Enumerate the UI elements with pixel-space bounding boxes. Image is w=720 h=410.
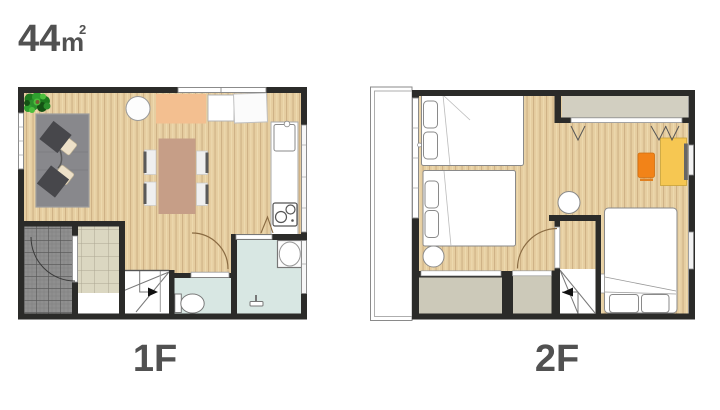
- svg-text:44: 44: [18, 18, 60, 60]
- svg-text:2: 2: [79, 22, 86, 37]
- svg-text:1F: 1F: [133, 338, 177, 380]
- svg-text:2F: 2F: [535, 338, 579, 380]
